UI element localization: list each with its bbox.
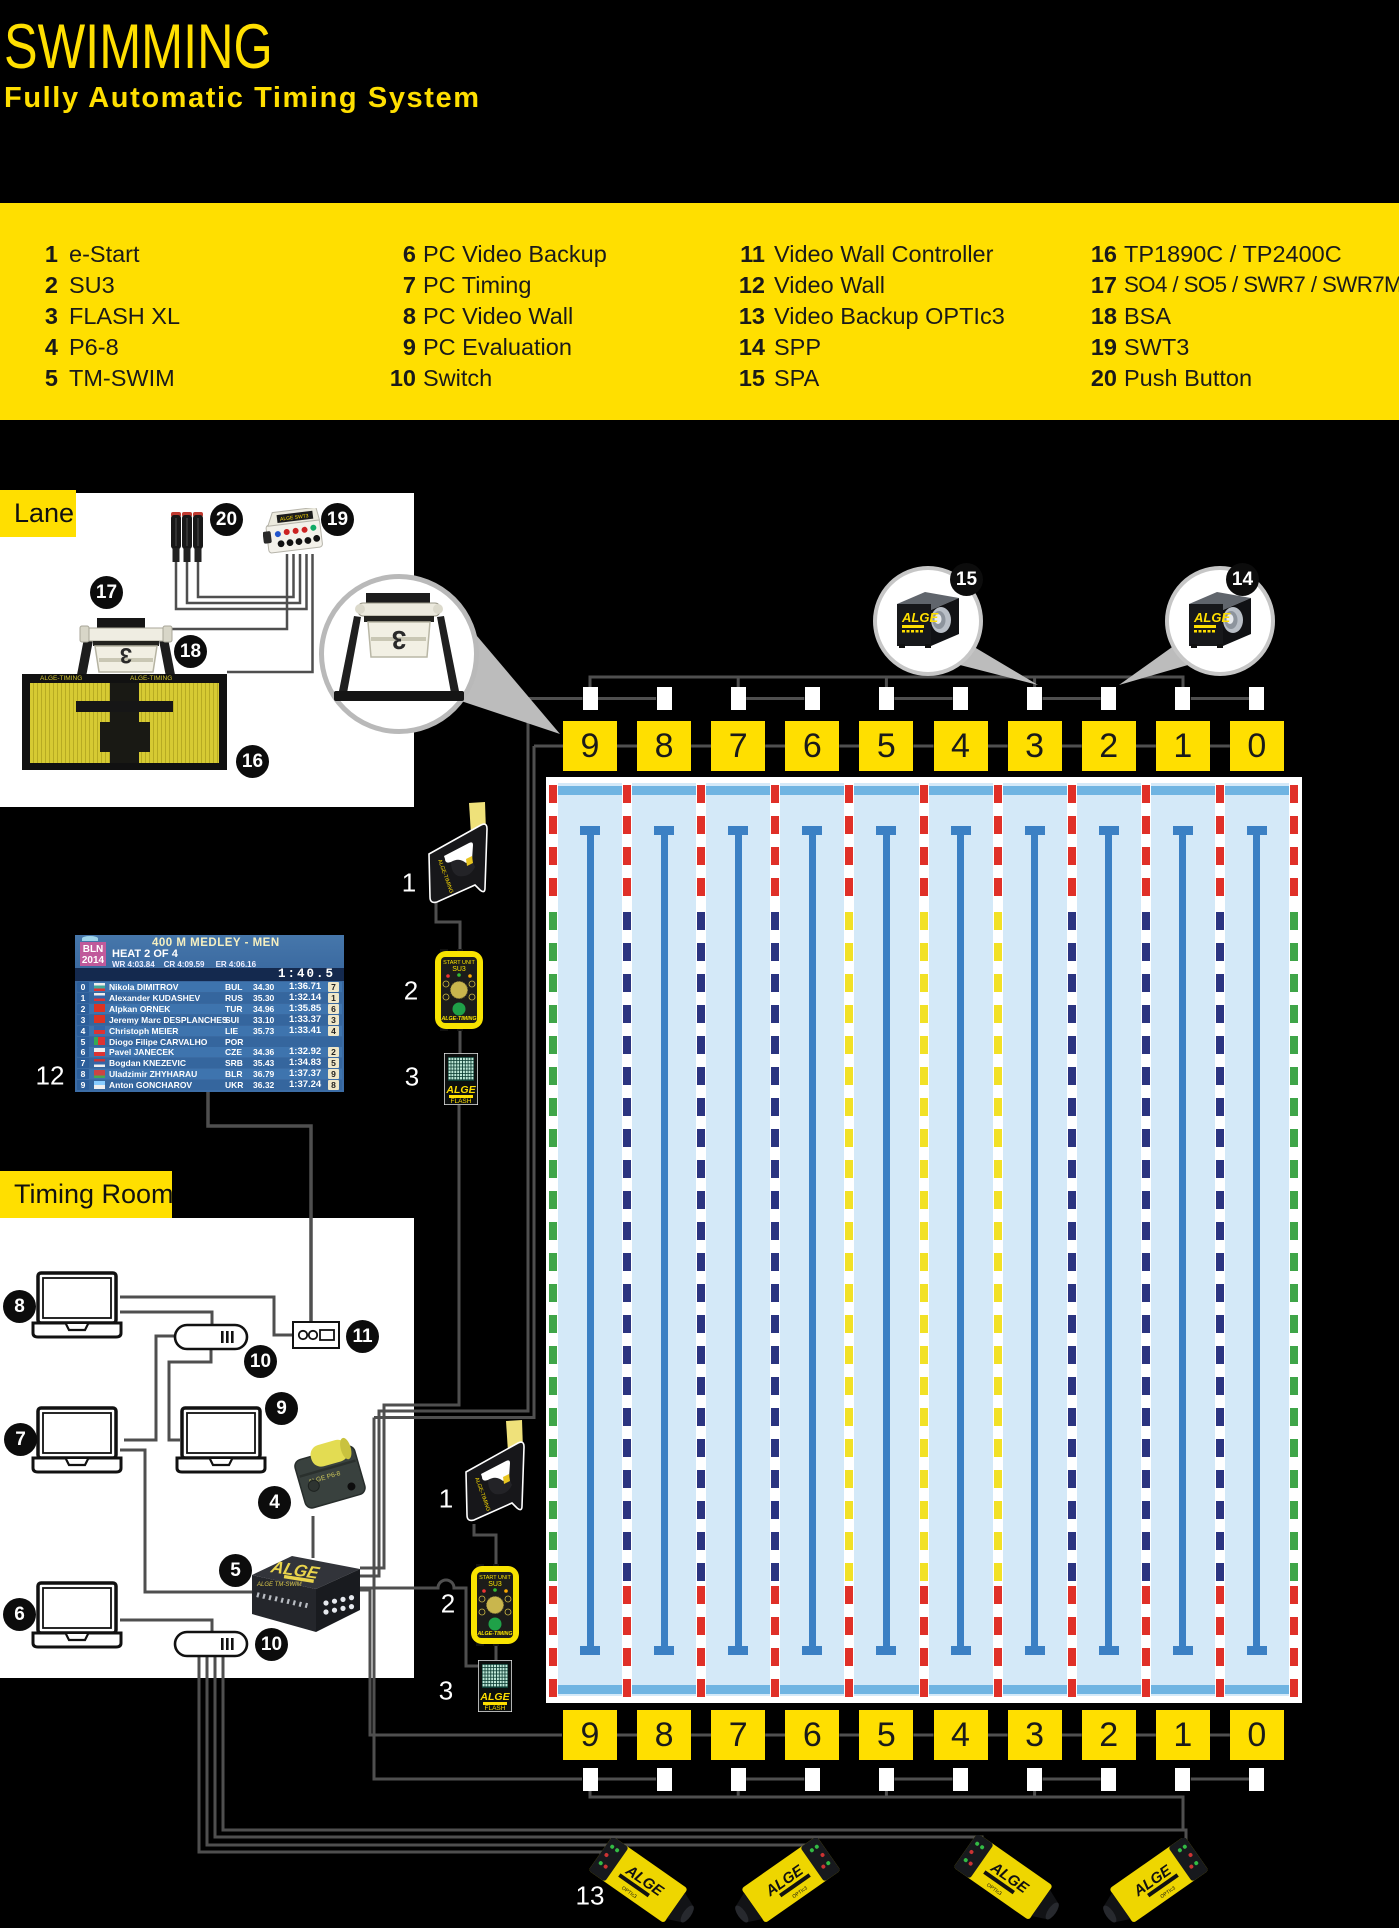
svg-text:ALGE TM-SWIM: ALGE TM-SWIM [256, 1582, 302, 1588]
svg-text:ALGE-TIMING: ALGE-TIMING [476, 1631, 512, 1637]
svg-text:ALGE: ALGE [1193, 610, 1230, 625]
svg-text:SU3: SU3 [488, 1581, 502, 1588]
svg-text:FLASH: FLASH [485, 1705, 506, 1712]
svg-text:3: 3 [120, 643, 132, 668]
svg-text:FLASH: FLASH [451, 1098, 472, 1105]
svg-text:ALGE: ALGE [479, 1691, 510, 1703]
svg-text:ALGE: ALGE [901, 610, 938, 625]
svg-text:ALGE-TIMING: ALGE-TIMING [440, 1016, 476, 1022]
svg-text:ALGE: ALGE [445, 1084, 476, 1096]
svg-text:3: 3 [392, 625, 406, 655]
svg-text:SU3: SU3 [452, 966, 466, 973]
